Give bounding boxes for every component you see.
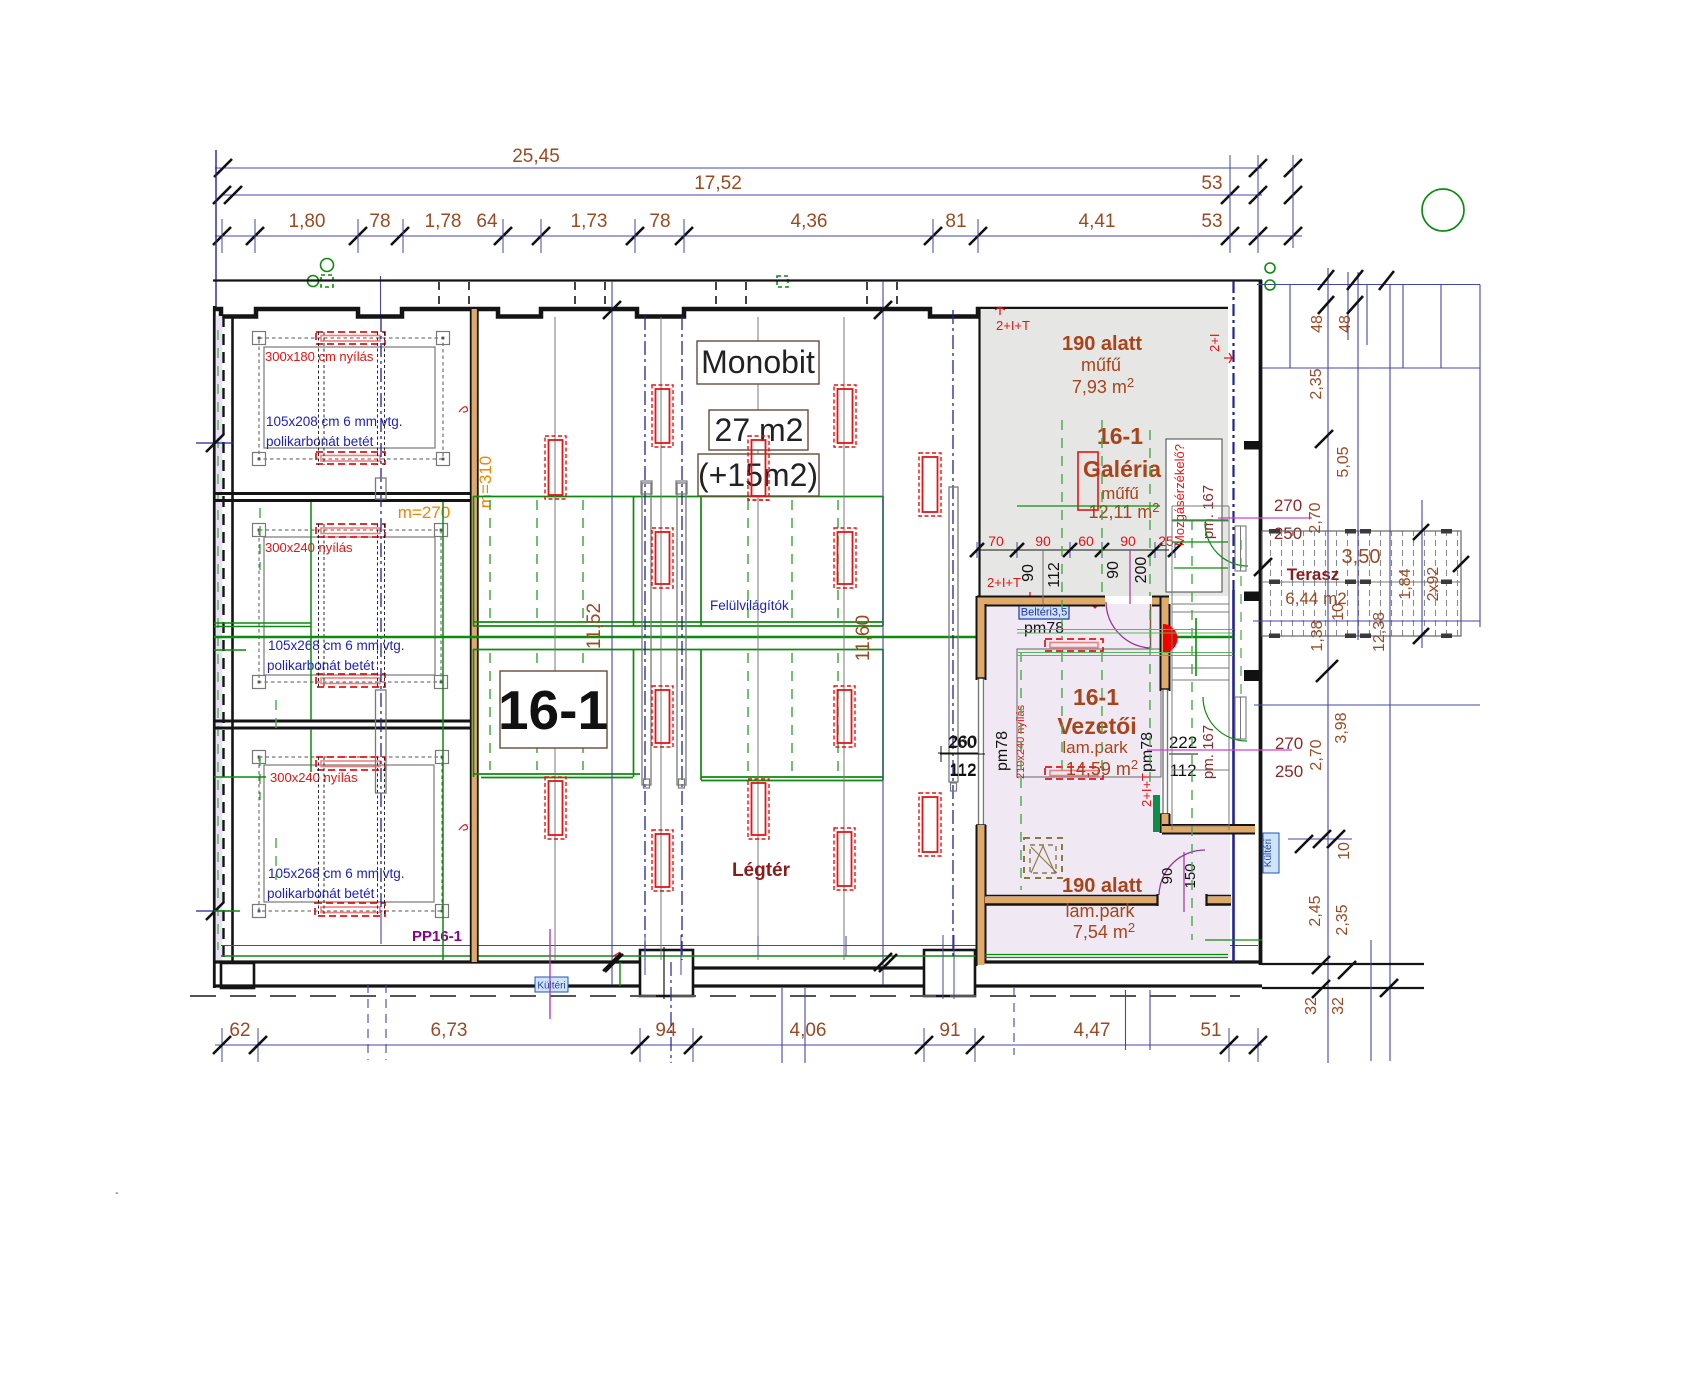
svg-text:78: 78 [369,211,390,232]
svg-text:32: 32 [1303,997,1320,1015]
svg-text:300x240 nyílás: 300x240 nyílás [265,540,353,555]
svg-text:2,35: 2,35 [1308,368,1325,399]
svg-text:1,80: 1,80 [289,211,326,232]
svg-text:90: 90 [1120,533,1136,549]
svg-text:m=310: m=310 [476,456,495,508]
svg-text:7,54 m2: 7,54 m2 [1073,920,1135,942]
svg-text:2,45: 2,45 [1307,895,1324,926]
svg-text:pm. 167: pm. 167 [1200,725,1217,779]
svg-text:190 alatt: 190 alatt [1062,875,1142,897]
svg-text:Vezetői: Vezetői [1057,713,1136,739]
svg-text:16-1: 16-1 [1073,684,1119,710]
svg-text:25,45: 25,45 [512,146,560,167]
svg-text:78: 78 [649,211,670,232]
svg-text:48: 48 [1337,315,1354,333]
svg-text:51: 51 [1200,1020,1221,1041]
svg-text:pm. 167: pm. 167 [1200,485,1217,539]
svg-text:2+I+T: 2+I+T [987,575,1021,590]
svg-text:105x208 cm 6 mm vtg.: 105x208 cm 6 mm vtg. [266,414,403,429]
svg-text:90: 90 [1159,868,1176,885]
svg-text:16-1: 16-1 [498,679,608,741]
svg-text:Beltéri3,5: Beltéri3,5 [1021,607,1067,619]
svg-text:60: 60 [1078,533,1094,549]
svg-text:1,84: 1,84 [1397,568,1414,599]
svg-text:polikarbonát betét: polikarbonát betét [267,886,375,901]
svg-text:90: 90 [1020,564,1037,582]
svg-text:polikarbonát betét: polikarbonát betét [267,658,375,673]
svg-text:11,60: 11,60 [853,615,874,661]
svg-text:5,05: 5,05 [1335,446,1352,477]
svg-text:12,38: 12,38 [1371,612,1388,652]
svg-text:11,52: 11,52 [584,603,605,649]
svg-text:112: 112 [1046,562,1063,588]
svg-text:64: 64 [476,211,498,232]
svg-text:150: 150 [1182,863,1199,888]
svg-text:2,70: 2,70 [1307,502,1324,533]
svg-text:250: 250 [1275,762,1303,781]
svg-text:pm78: pm78 [1139,732,1156,772]
svg-text:műfű: műfű [1081,355,1121,375]
svg-text:81: 81 [945,211,966,232]
svg-text:műfű: műfű [1101,484,1139,503]
svg-text:2+I+T: 2+I+T [1139,773,1154,807]
svg-text:6,73: 6,73 [431,1020,468,1041]
svg-text:91: 91 [939,1020,960,1041]
svg-text:pm78: pm78 [1024,620,1064,637]
svg-text:Mozgásérzékelő?: Mozgásérzékelő? [1172,444,1187,546]
svg-text:lam.park: lam.park [1062,738,1128,757]
svg-text:PP16-1: PP16-1 [412,928,462,945]
svg-text:17,52: 17,52 [694,173,742,194]
svg-text:48: 48 [1309,315,1326,333]
svg-text:260: 260 [948,733,976,752]
svg-text:270: 270 [1274,496,1302,515]
svg-text:62: 62 [229,1020,250,1041]
svg-text:190 alatt: 190 alatt [1062,333,1142,355]
svg-text:300x180 cm nyílás: 300x180 cm nyílás [265,349,374,364]
svg-text:2x92: 2x92 [1425,567,1442,602]
svg-text:4,47: 4,47 [1074,1020,1111,1041]
svg-text:2+I+T: 2+I+T [996,318,1030,333]
svg-text:1,38: 1,38 [1309,620,1326,651]
svg-text:27 m2: 27 m2 [715,412,804,448]
svg-text:polikarbonát betét: polikarbonát betét [266,434,374,449]
svg-text:Kültéri: Kültéri [1263,839,1274,867]
svg-text:3,98: 3,98 [1333,712,1350,743]
svg-text:300x240 nyílás: 300x240 nyílás [270,770,358,785]
svg-text:4,06: 4,06 [790,1020,827,1041]
svg-text:16-1: 16-1 [1097,423,1143,449]
svg-text:Monobit: Monobit [701,344,815,380]
svg-text:pm78: pm78 [994,731,1011,771]
svg-text:70: 70 [988,533,1004,549]
svg-text:Felülvilágítók: Felülvilágítók [710,598,789,613]
svg-text:32: 32 [1330,997,1347,1015]
svg-text:222: 222 [1169,733,1197,752]
svg-text:2+I: 2+I [1207,334,1222,352]
svg-text:-: - [115,1187,119,1199]
svg-text:2,35: 2,35 [1334,904,1351,935]
svg-text:(+15m2): (+15m2) [698,457,818,493]
svg-text:53: 53 [1201,173,1222,194]
svg-text:lam.park: lam.park [1065,901,1135,921]
svg-text:270: 270 [1275,734,1303,753]
svg-text:90: 90 [1035,533,1051,549]
svg-text:200: 200 [1133,557,1150,584]
svg-text:7,93 m2: 7,93 m2 [1072,375,1134,397]
svg-text:Terasz: Terasz [1287,565,1340,584]
svg-text:4,41: 4,41 [1079,211,1116,232]
svg-text:94: 94 [655,1020,677,1041]
svg-text:3,50: 3,50 [1342,546,1381,568]
svg-text:12,11 m2: 12,11 m2 [1089,500,1160,522]
svg-text:112: 112 [949,761,976,780]
svg-text:1,73: 1,73 [571,211,608,232]
svg-text:1,78: 1,78 [425,211,462,232]
svg-text:2,70: 2,70 [1308,739,1325,770]
svg-text:10: 10 [1336,842,1353,860]
svg-text:Kültéri: Kültéri [537,981,565,992]
svg-text:Légtér: Légtér [732,860,791,881]
svg-text:10: 10 [1330,603,1347,621]
svg-text:90: 90 [1105,561,1122,579]
svg-text:53: 53 [1201,211,1222,232]
svg-text:4,36: 4,36 [791,211,828,232]
